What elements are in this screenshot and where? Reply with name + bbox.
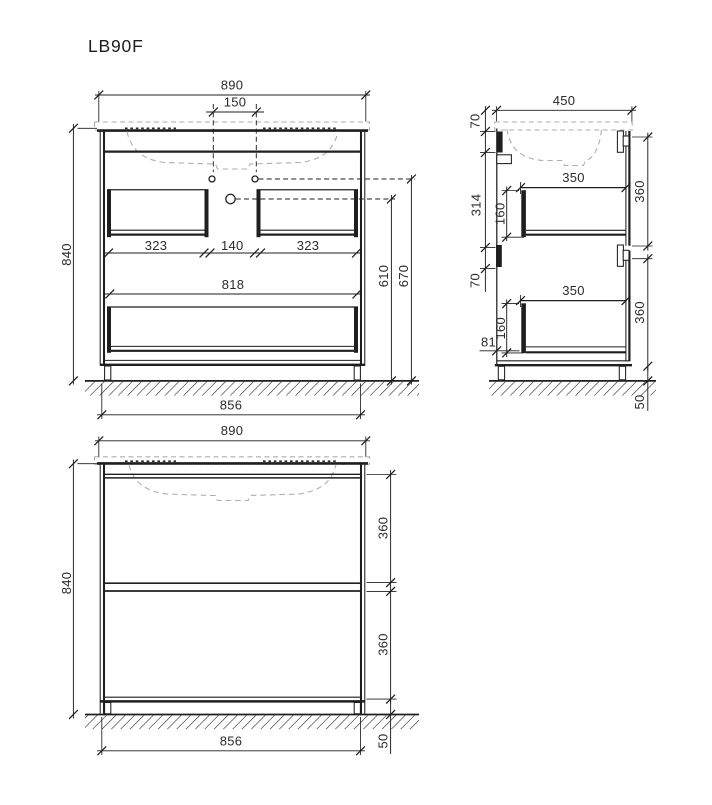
- dim-overall-height: 840: [59, 124, 97, 385]
- dim-drawer-widths: 323 140 323: [104, 238, 361, 257]
- closed-left-leg: [105, 703, 111, 714]
- handle-top-notch: [623, 136, 629, 146]
- drain-hole: [226, 194, 235, 203]
- dim-closed-width: 890: [94, 423, 370, 457]
- dim-label: 360: [375, 517, 390, 540]
- handle-bottom: [617, 245, 623, 266]
- dim-top-drawer-depth: 350: [516, 170, 630, 194]
- dim-label: 890: [221, 423, 244, 438]
- handle-bottom-notch: [623, 250, 629, 260]
- dim-faucet-height: 670: [396, 175, 416, 386]
- front-view-closed: 890 840 360 360 50: [59, 423, 419, 755]
- back-bracket-top: [497, 132, 503, 153]
- dim-bottom-drawer-height: 160: [493, 299, 524, 357]
- washbasin-outline: [127, 132, 338, 170]
- dim-drain-height: 610: [376, 195, 396, 386]
- countertop-side: [495, 122, 632, 130]
- dim-label: 350: [562, 283, 585, 298]
- back-fitting: [497, 155, 512, 164]
- dim-inner-width: 818: [105, 277, 361, 298]
- side-ground: [489, 381, 656, 396]
- dim-label: 818: [222, 277, 245, 292]
- dim-label: 610: [376, 265, 391, 288]
- side-carcass: [495, 129, 632, 380]
- dim-label: 50: [375, 733, 390, 748]
- dim-label: 81: [481, 335, 496, 350]
- handle-top: [617, 131, 623, 152]
- front-view-open: 890 150 840 323 140 323 818: [59, 78, 419, 420]
- ground: [85, 381, 419, 396]
- washbasin-outline-closed: [129, 465, 336, 501]
- dim-closed-top-front: 360: [367, 470, 397, 587]
- side-upper-drawer-box: [521, 188, 627, 238]
- cabinet-carcass: [100, 131, 365, 380]
- faucet-hole-left: [209, 176, 215, 182]
- side-lower-drawer-box: [521, 301, 627, 353]
- dim-label: 360: [632, 301, 647, 324]
- drawer-fronts-side: [617, 131, 629, 361]
- dim-top-front-height: 360: [632, 133, 653, 251]
- dim-closed-height: 840: [59, 459, 97, 719]
- closed-ground: [85, 715, 419, 730]
- dim-bottom-drawer-depth: 350: [516, 283, 630, 307]
- dim-label: 350: [562, 170, 585, 185]
- dim-label: 314: [468, 194, 483, 217]
- dim-label: 160: [493, 203, 508, 226]
- dim-label: 323: [145, 238, 168, 253]
- side-right-leg: [619, 366, 625, 380]
- right-leg: [354, 366, 360, 380]
- dim-depth: 450: [492, 93, 636, 122]
- dim-faucet-spacing: 150: [206, 95, 264, 117]
- dim-bottom-front-height: 360: [632, 254, 653, 370]
- dim-label: 856: [220, 733, 243, 748]
- left-leg: [105, 366, 111, 380]
- dim-label: 670: [396, 265, 411, 288]
- faucet-hole-right: [252, 176, 258, 182]
- closed-right-leg: [354, 703, 360, 714]
- dim-label: 50: [632, 394, 647, 409]
- dim-left-column: 70 314 70: [467, 106, 495, 292]
- dim-label: 450: [553, 93, 576, 108]
- countertop: [95, 122, 370, 131]
- drawing-page: LB90F: [0, 0, 712, 800]
- closed-carcass: [100, 464, 365, 714]
- dim-closed-bottom-front: 360: [367, 587, 397, 704]
- countertop-closed: [95, 457, 370, 464]
- side-view: 450 70 314 70 350 160: [467, 93, 656, 411]
- closed-ground-hatch: [85, 715, 419, 729]
- dim-top-drawer-height: 160: [493, 186, 524, 242]
- technical-drawing: LB90F: [0, 0, 712, 800]
- model-label: LB90F: [88, 36, 144, 56]
- dim-label: 890: [221, 78, 244, 93]
- dim-label: 150: [224, 95, 247, 110]
- dim-label: 70: [467, 113, 482, 128]
- ground-hatch: [85, 382, 419, 396]
- back-bracket-mid: [496, 245, 502, 267]
- washbasin-side-outline: [507, 129, 602, 166]
- dim-label: 360: [632, 180, 647, 203]
- dim-label: 323: [297, 238, 320, 253]
- upper-left-drawer-box: [107, 190, 209, 237]
- dim-label: 70: [467, 273, 482, 288]
- dim-label: 840: [59, 572, 74, 595]
- dim-label: 140: [221, 238, 244, 253]
- side-ground-hatch: [489, 382, 656, 396]
- dim-label: 360: [375, 633, 390, 656]
- dim-label: 840: [59, 243, 74, 266]
- side-left-leg: [498, 366, 504, 380]
- dim-label: 856: [220, 398, 243, 413]
- upper-right-drawer-box: [257, 190, 359, 237]
- lower-wide-drawer-box: [107, 307, 358, 353]
- faucet-holes: [209, 104, 415, 204]
